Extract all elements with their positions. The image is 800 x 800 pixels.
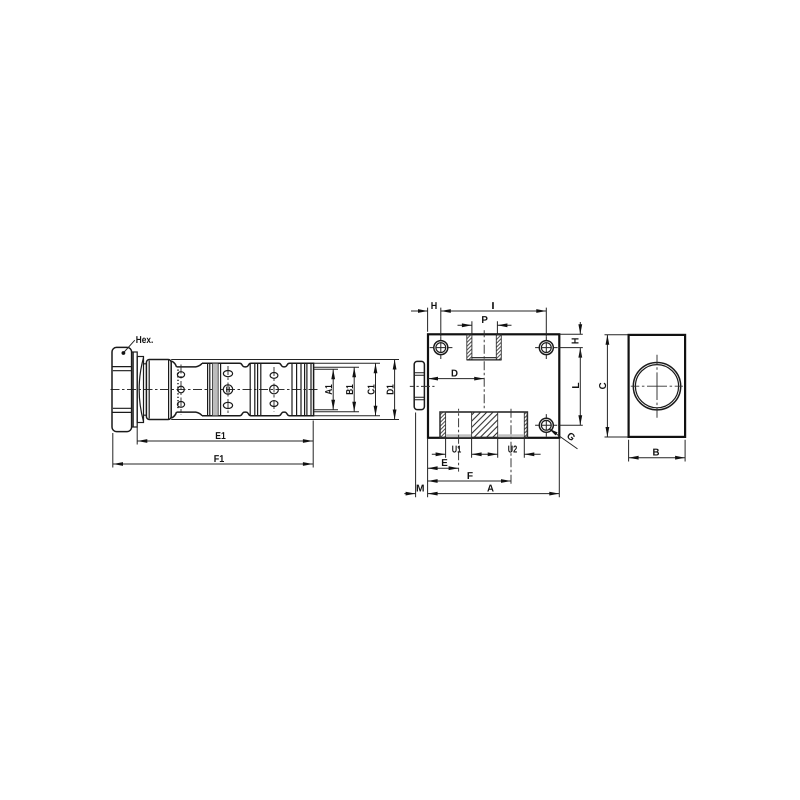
svg-text:B1: B1 [345,384,356,395]
svg-text:Hex.: Hex. [136,335,154,346]
svg-text:U2: U2 [508,444,518,455]
svg-text:H: H [431,301,438,312]
svg-text:F1: F1 [214,454,225,465]
svg-text:E1: E1 [215,431,226,442]
svg-text:M: M [416,484,425,495]
svg-text:I: I [491,301,494,312]
svg-text:C: C [598,382,609,389]
svg-text:U1: U1 [452,444,462,455]
svg-text:P: P [481,315,488,326]
svg-text:A: A [487,484,494,495]
svg-text:D1: D1 [386,384,397,395]
svg-text:F: F [467,471,473,482]
svg-text:A1: A1 [324,384,335,395]
svg-text:L: L [571,382,582,388]
svg-text:E: E [441,458,448,469]
svg-text:H: H [571,338,582,345]
svg-text:C1: C1 [367,384,378,395]
svg-text:B: B [653,448,660,459]
svg-text:D: D [451,369,458,380]
